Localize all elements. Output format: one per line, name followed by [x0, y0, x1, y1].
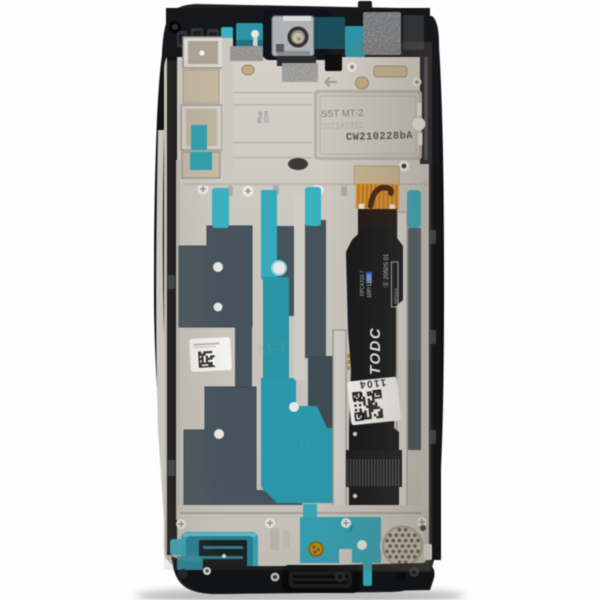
svg-text:2204: 2204	[264, 111, 270, 123]
